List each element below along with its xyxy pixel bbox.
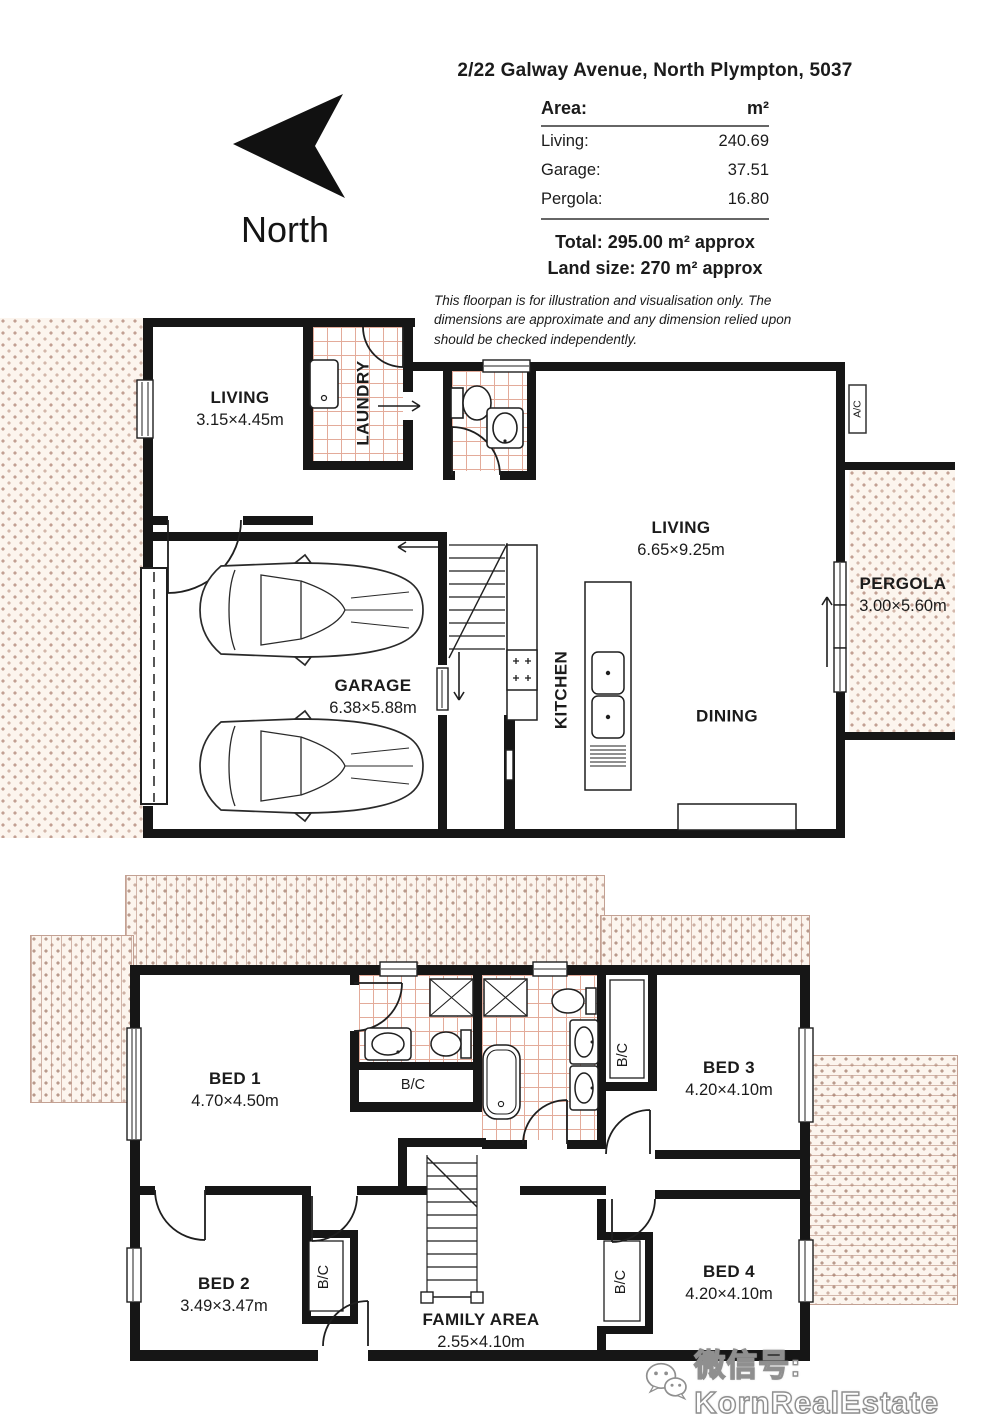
north-label: North (200, 209, 370, 251)
header-column: 2/22 Galway Avenue, North Plympton, 5037… (420, 60, 890, 349)
ac-unit-label: A/C (851, 400, 864, 418)
watermark-text: 微信号: KornRealEstate (694, 1340, 1000, 1414)
area-table-header-label: Area: (541, 96, 666, 126)
room-label-bed3: BED 3 4.20×4.10m (685, 1057, 773, 1101)
laundry-trough (310, 360, 338, 408)
area-row-label: Pergola: (541, 185, 666, 219)
area-row-label: Garage: (541, 156, 666, 185)
upper-stairs (449, 543, 507, 660)
room-label-pergola: PERGOLA 3.00×5.60m (859, 573, 947, 617)
kitchen-island (585, 582, 631, 790)
ensuite-basin (365, 1028, 411, 1060)
powder-basin (487, 408, 523, 448)
room-label-laundry: LAUNDRY (352, 360, 373, 445)
room-label-bed1: BED 1 4.70×4.50m (191, 1068, 279, 1112)
bc-label-ensuite: B/C (401, 1076, 425, 1094)
area-row-value: 37.51 (666, 156, 769, 185)
ensuite-toilet (431, 1030, 471, 1058)
cooktop-icon (507, 650, 537, 690)
table-row: Pergola: 16.80 (541, 185, 769, 219)
wechat-icon (645, 1357, 687, 1405)
room-label-bed4: BED 4 4.20×4.10m (685, 1261, 773, 1305)
buffet-cabinet (678, 804, 796, 830)
totals-block: Total: 295.00 m² approx Land size: 270 m… (420, 229, 890, 281)
bc-label-bed4: B/C (612, 1270, 630, 1294)
area-row-value: 16.80 (666, 185, 769, 219)
area-row-label: Living: (541, 126, 666, 156)
floorplan-page: North 2/22 Galway Avenue, North Plympton… (0, 0, 1000, 1414)
area-table-header-unit: m² (666, 96, 769, 126)
bathtub-icon (483, 1045, 520, 1119)
kitchen-counter (507, 545, 537, 720)
room-label-garage: GARAGE 6.38×5.88m (329, 675, 417, 719)
room-label-bed2: BED 2 3.49×3.47m (180, 1273, 268, 1317)
page-title: 2/22 Galway Avenue, North Plympton, 5037 (420, 60, 890, 82)
table-row: Living: 240.69 (541, 126, 769, 156)
bc-label-bed2: B/C (315, 1265, 333, 1289)
room-label-living-main: LIVING 6.65×9.25m (637, 517, 725, 561)
car-icon (200, 555, 423, 665)
total-area-line: Total: 295.00 m² approx (420, 229, 890, 255)
north-indicator: North (200, 88, 370, 251)
watermark: 微信号: KornRealEstate (645, 1340, 1000, 1414)
car-icon (200, 711, 423, 821)
powder-toilet (451, 386, 491, 420)
disclaimer-text: This floorpan is for illustration and vi… (434, 291, 816, 348)
room-label-living-small: LIVING 3.15×4.45m (196, 387, 284, 431)
bath-toilet (552, 988, 596, 1014)
area-row-value: 240.69 (666, 126, 769, 156)
room-label-dining: DINING (696, 705, 758, 726)
room-label-family-area: FAMILY AREA 2.55×4.10m (422, 1309, 539, 1353)
north-arrow-icon (215, 88, 355, 200)
lower-stairs (421, 1155, 483, 1303)
area-table: Area: m² Living: 240.69 Garage: 37.51 Pe… (541, 96, 769, 220)
vanity-basins (570, 1020, 598, 1110)
bc-label-bed3: B/C (614, 1043, 632, 1067)
garage-door (141, 568, 167, 804)
land-size-line: Land size: 270 m² approx (420, 255, 890, 281)
table-row: Garage: 37.51 (541, 156, 769, 185)
room-label-kitchen: KITCHEN (550, 651, 571, 729)
